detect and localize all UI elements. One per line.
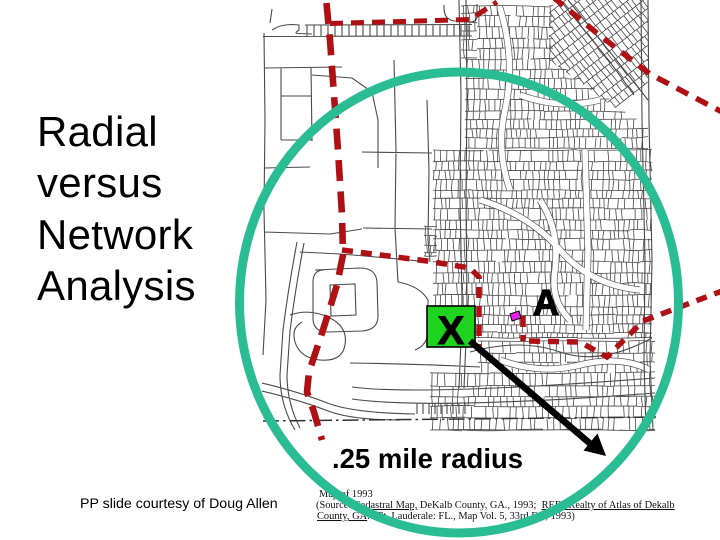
svg-text:.25 mile radius: .25 mile radius [332, 443, 523, 474]
svg-text:A: A [533, 282, 559, 323]
svg-text:X: X [438, 309, 465, 353]
